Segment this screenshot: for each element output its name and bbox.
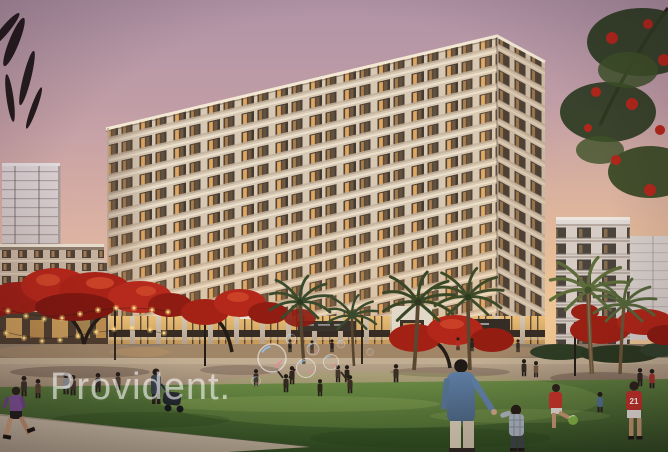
vignette-overlay: [0, 0, 668, 452]
render-scene: 21: [0, 0, 668, 452]
scene-canvas: 21: [0, 0, 668, 452]
